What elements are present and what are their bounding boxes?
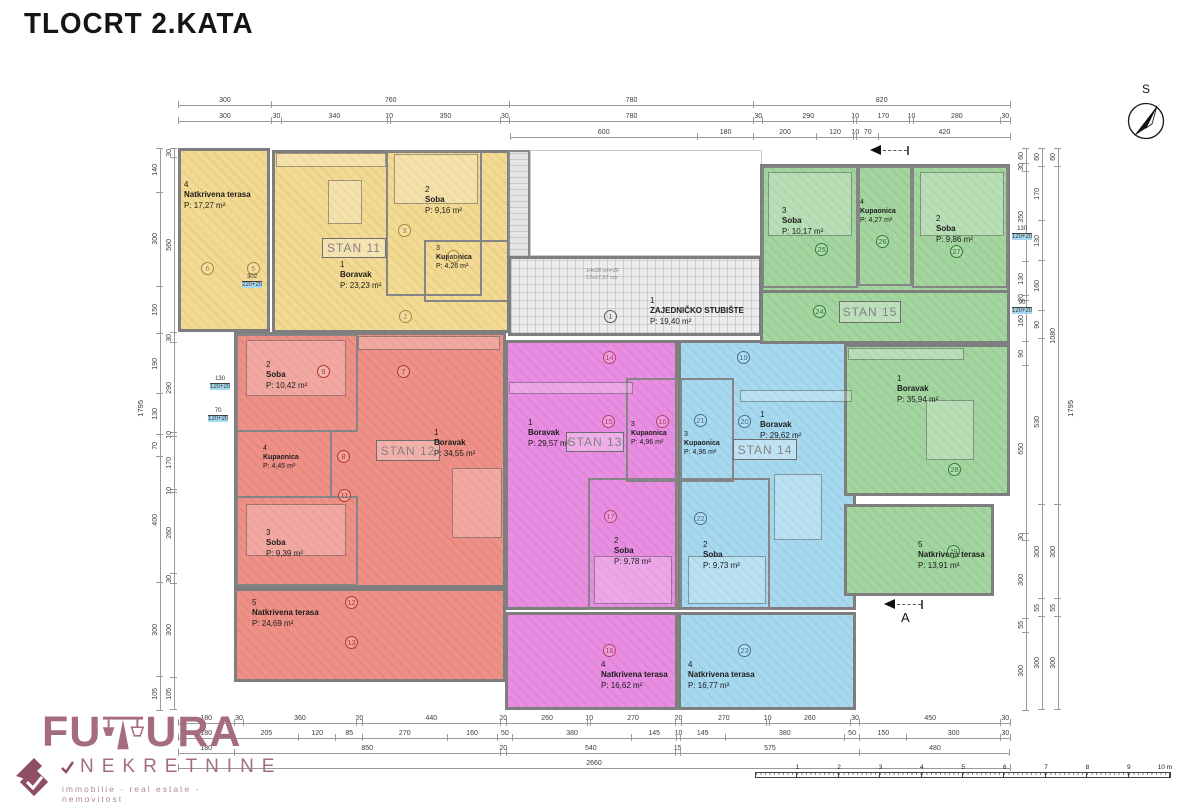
dimension-value: 280 — [951, 113, 963, 120]
position-marker-16: 16 — [656, 415, 669, 428]
dimension-segment: 3 — [839, 773, 880, 777]
position-marker-2: 2 — [399, 310, 412, 323]
dimension-value: 200 — [779, 129, 791, 136]
furniture-kitchen-counter — [509, 382, 633, 394]
dimension-segment: 140 — [150, 148, 161, 192]
dimension-value: 130 — [1018, 273, 1025, 285]
dimension-value: 60 — [1034, 153, 1041, 161]
dimension-segment: 340 — [281, 111, 387, 122]
dimension-segment: 170 — [164, 436, 175, 489]
dimension-segment: 540 — [506, 743, 675, 754]
position-marker-19: 19 — [737, 351, 750, 364]
room-label-stan11-terasa: 4 Natkrivena terasa P: 17,27 m² — [184, 180, 251, 211]
dimension-segment: 260 — [506, 713, 587, 724]
dimension-chain-right-3: 60108030055300 — [1048, 148, 1058, 710]
agency-logo: FU URA NEKRETNINE immobilie - real estat… — [20, 712, 256, 808]
room-label-stan15-soba3: 3 Soba P: 10,17 m² — [782, 206, 823, 237]
dimension-segment: 2 — [797, 773, 838, 777]
dimension-value: 290 — [802, 113, 814, 120]
dimension-value: 780 — [626, 97, 638, 104]
position-marker-7: 7 — [397, 365, 410, 378]
dimension-total-left: 1795 — [136, 400, 145, 417]
dimension-segment: 130 — [1032, 220, 1043, 261]
dimension-value: 70 — [152, 442, 159, 450]
dimension-segment: 300 — [164, 583, 175, 677]
dimension-value: 140 — [152, 164, 159, 176]
dimension-segment: 400 — [150, 457, 161, 583]
dimension-value: 300 — [152, 233, 159, 245]
dimension-value: 530 — [1034, 416, 1041, 428]
logo-name-row: NEKRETNINE — [60, 756, 282, 778]
apartment-label-stan13: STAN 13 — [566, 432, 624, 452]
dimension-segment: 55 — [1016, 618, 1027, 632]
dimension-value: 30 — [754, 113, 762, 120]
dimension-value: 270 — [718, 715, 730, 722]
dimension-value: 850 — [361, 745, 373, 752]
dimension-value: 1 — [796, 765, 800, 772]
dimension-segment: 70 — [857, 127, 879, 138]
position-marker-23: 23 — [738, 644, 751, 657]
dimension-segment: 105 — [164, 677, 175, 710]
position-marker-11: 11 — [338, 489, 351, 502]
dimension-value: 650 — [1018, 443, 1025, 455]
position-marker-12: 12 — [345, 596, 358, 609]
dimension-value: 540 — [585, 745, 597, 752]
dimension-segment: 55 — [1032, 599, 1043, 616]
dimension-value: 30 — [1001, 715, 1009, 722]
dimension-segment: 85 — [336, 728, 363, 739]
position-marker-6: 6 — [201, 262, 214, 275]
dimension-chain-left-inner: 3056030290101701026030300105 — [164, 148, 174, 710]
dimension-value: 340 — [329, 113, 341, 120]
dimension-segment: 380 — [513, 728, 632, 739]
section-line — [883, 150, 907, 151]
room-label-stan14-soba: 2 Soba P: 9,73 m² — [703, 540, 740, 571]
room-label-stan13-terasa: 4 Natkrivena terasa P: 16,62 m² — [601, 660, 668, 691]
room-label-stan14-boravak: 1 Boravak P: 29,62 m² — [760, 410, 801, 441]
dimension-segment: 300 — [907, 728, 1001, 739]
section-line-corner — [907, 146, 909, 155]
dimension-value: 50 — [848, 730, 856, 737]
dimension-segment: 8 — [1046, 773, 1087, 777]
compass-label: S — [1122, 82, 1170, 96]
sill-label: 302 220+20 — [242, 274, 262, 289]
dimension-value: 440 — [426, 715, 438, 722]
dimension-segment: 160 — [1032, 261, 1043, 311]
room-label-stan13-soba: 2 Soba P: 9,78 m² — [614, 536, 651, 567]
dimension-segment: 2660 — [178, 758, 1010, 769]
room-label-stan15-kupaonica: 4 Kupaonica P: 4,27 m² — [860, 198, 896, 225]
dimension-value: 160 — [1034, 280, 1041, 292]
room-label-stan14-kupaonica: 3 Kupaonica P: 4,96 m² — [684, 430, 720, 457]
dimension-chain-bottom-total: 2660 — [178, 759, 1010, 769]
section-label: A — [901, 610, 910, 625]
dimension-value: 85 — [345, 730, 353, 737]
floor-plan-canvas: TLOCRT 2.KATA 4 Natkrivena terasa P: 17 — [0, 0, 1200, 812]
dimension-segment: 300 — [1032, 616, 1043, 710]
dimension-segment: 120 — [816, 127, 854, 138]
dimension-value: 60 — [1018, 152, 1025, 160]
dimension-segment: 9 — [1087, 773, 1128, 777]
dimension-segment: 160 — [447, 728, 497, 739]
room-label-stan12-soba2: 2 Soba P: 10,42 m² — [266, 360, 307, 391]
dimension-segment: 760 — [272, 95, 510, 106]
section-marker-top — [870, 142, 909, 160]
dimension-segment: 60 — [1032, 148, 1043, 167]
dimension-segment: 820 — [754, 95, 1010, 106]
position-marker-8: 8 — [337, 450, 350, 463]
position-marker-1: 1 — [604, 310, 617, 323]
dimension-value: 575 — [764, 745, 776, 752]
dimension-value: 480 — [929, 745, 941, 752]
sill-label: 130 120+20 — [210, 376, 230, 391]
dimension-value: 300 — [1050, 546, 1057, 558]
light-shaft — [508, 150, 530, 258]
section-arrow-icon — [884, 599, 895, 609]
dimension-segment: 300 — [1016, 541, 1027, 619]
sill-label: 70 120+20 — [208, 408, 228, 423]
apartment-label-stan14: STAN 14 — [733, 439, 797, 460]
dimension-value: 260 — [541, 715, 553, 722]
dimension-segment: 600 — [510, 127, 698, 138]
dimension-segment: 120 — [298, 728, 336, 739]
dimension-value: 300 — [948, 730, 960, 737]
dimension-segment: 130 — [1016, 262, 1027, 296]
logo-key-arrow-icon — [14, 756, 54, 798]
position-marker-3: 3 — [398, 224, 411, 237]
dimension-segment: 145 — [680, 728, 725, 739]
dimension-value: 300 — [219, 113, 231, 120]
dimension-segment: 260 — [164, 492, 175, 573]
dimension-value: 55 — [1018, 621, 1025, 629]
dimension-segment: 440 — [363, 713, 501, 724]
dimension-segment: 300 — [1032, 505, 1043, 599]
dimension-value: 600 — [598, 129, 610, 136]
dimension-value: 2660 — [586, 760, 602, 767]
dimension-value: 420 — [939, 129, 951, 136]
dimension-segment: 6 — [963, 773, 1004, 777]
furniture-kitchen-counter — [276, 153, 386, 167]
dimension-segment: 450 — [860, 713, 1001, 724]
dimension-value: 360 — [294, 715, 306, 722]
section-arrow-icon — [870, 145, 881, 155]
dimension-value: 450 — [924, 715, 936, 722]
position-marker-22: 22 — [694, 512, 707, 525]
logo-text-ura: URA — [145, 713, 241, 752]
dimension-segment: 380 — [725, 728, 844, 739]
dimension-value: 130 — [152, 408, 159, 420]
dimension-segment: 170 — [857, 111, 910, 122]
dimension-segment: 300 — [1016, 632, 1027, 710]
room-label-stan11-soba: 2 Soba P: 9,16 m² — [425, 185, 462, 216]
dimension-segment: 300 — [150, 583, 161, 677]
dimension-segment: 290 — [763, 111, 854, 122]
section-line-corner — [921, 600, 923, 609]
dimension-value: 290 — [166, 382, 173, 394]
compass-needle-icon — [1124, 96, 1168, 142]
position-marker-4: 4 — [447, 250, 460, 263]
dimension-value: 50 — [501, 730, 509, 737]
furniture-table — [774, 474, 822, 540]
dimension-value: 190 — [152, 358, 159, 370]
dimension-value: 120 — [311, 730, 323, 737]
dimension-value: 300 — [219, 97, 231, 104]
position-marker-29: 29 — [947, 545, 960, 558]
dimension-value: 9 — [1127, 765, 1131, 772]
scale-bar: 12345678910 m — [755, 772, 1171, 778]
furniture-table — [926, 400, 974, 460]
dimension-segment: 190 — [150, 334, 161, 394]
dimension-value: 820 — [876, 97, 888, 104]
dimension-value: 30 — [166, 149, 173, 157]
room-label-stan12-boravak: 1 Boravak P: 34,55 m² — [434, 428, 475, 459]
dimension-segment: 70 — [150, 435, 161, 457]
room-label-stan14-terasa: 4 Natkrivena terasa P: 16,77 m² — [688, 660, 755, 691]
logo-wordmark: FU URA — [42, 712, 242, 752]
position-marker-28: 28 — [948, 463, 961, 476]
dimension-segment: 360 — [244, 713, 357, 724]
furniture-kitchen-counter — [740, 390, 852, 402]
furniture-kitchen-counter — [358, 336, 500, 350]
dimension-segment: 145 — [632, 728, 677, 739]
dimension-chain-top-1: 300760780820 — [178, 96, 1010, 106]
dimension-value: 170 — [166, 457, 173, 469]
position-marker-14: 14 — [603, 351, 616, 364]
dimension-segment: 300 — [178, 111, 272, 122]
dimension-segment: 850 — [234, 743, 500, 754]
dimension-value: 55 — [1034, 604, 1041, 612]
dimension-segment: 200 — [754, 127, 817, 138]
dimension-value: 6 — [1003, 765, 1007, 772]
position-marker-27: 27 — [950, 245, 963, 258]
dimension-value: 7 — [1044, 765, 1048, 772]
position-marker-18: 18 — [603, 644, 616, 657]
dimension-value: 170 — [1034, 188, 1041, 200]
dimension-chain-bottom-1: 1803036020440202601027020270102603045030 — [178, 714, 1010, 724]
dimension-value: 170 — [877, 113, 889, 120]
dimension-value: 760 — [385, 97, 397, 104]
dimension-value: 60 — [1050, 153, 1057, 161]
dimension-value: 30 — [501, 113, 509, 120]
roof-area — [530, 150, 762, 256]
dimension-value: 270 — [627, 715, 639, 722]
dimension-value: 120 — [829, 129, 841, 136]
dimension-segment: 270 — [591, 713, 675, 724]
position-marker-21: 21 — [694, 414, 707, 427]
dimension-value: 350 — [440, 113, 452, 120]
dimension-value: 260 — [166, 527, 173, 539]
dimension-segment: 300 — [1048, 505, 1059, 599]
dimension-segment: 50 — [844, 728, 860, 739]
dimension-segment: 10 m — [1129, 773, 1170, 777]
sill-label: 90 120+20 — [1012, 300, 1032, 315]
dimension-value: 30 — [166, 334, 173, 342]
logo-balance-icon — [101, 712, 145, 752]
dimension-value: 70 — [864, 129, 872, 136]
logo-tagline: immobilie - real estate - nemovitost — [62, 784, 256, 804]
dimension-segment: 7 — [1004, 773, 1045, 777]
dimension-segment: 1080 — [1048, 167, 1059, 505]
dimension-value: 160 — [1018, 315, 1025, 327]
apartment-label-stan11: STAN 11 — [322, 238, 386, 258]
dimension-segment: 55 — [1048, 599, 1059, 616]
dimension-segment: 300 — [150, 192, 161, 286]
dimension-value: 90 — [1018, 350, 1025, 358]
position-marker-25: 25 — [815, 243, 828, 256]
dimension-segment: 5 — [922, 773, 963, 777]
dimension-value: 300 — [166, 624, 173, 636]
dimension-value: 300 — [1018, 574, 1025, 586]
page-title: TLOCRT 2.KATA — [24, 8, 254, 41]
dimension-segment: 150 — [150, 287, 161, 334]
dimension-segment: 300 — [178, 95, 272, 106]
dimension-value: 55 — [1050, 604, 1057, 612]
dimension-segment: 290 — [164, 342, 175, 433]
dimension-value: 90 — [1034, 321, 1041, 329]
dimension-segment: 420 — [879, 127, 1010, 138]
dimension-value: 205 — [261, 730, 273, 737]
dimension-value: 300 — [1034, 546, 1041, 558]
apartment-label-stan15: STAN 15 — [839, 301, 901, 323]
dimension-value: 560 — [166, 239, 173, 251]
position-marker-9: 9 — [317, 365, 330, 378]
dimension-segment: 30 — [1001, 728, 1010, 739]
dimension-value: 30 — [1001, 113, 1009, 120]
dimension-segment: 170 — [1032, 167, 1043, 220]
dimension-segment: 780 — [510, 95, 754, 106]
stan11-terrace-area — [178, 148, 270, 332]
dimension-value: 10 m — [1158, 765, 1172, 772]
dimension-segment: 280 — [913, 111, 1001, 122]
room-label-staircase: 1 ZAJEDNIČKO STUBIŠTE P: 19,40 m² — [650, 296, 744, 327]
furniture-kitchen-counter — [848, 348, 964, 360]
sill-label: 130 120+20 — [1012, 226, 1032, 241]
position-marker-26: 26 — [876, 235, 889, 248]
dimension-segment: 150 — [860, 728, 907, 739]
position-marker-24: 24 — [813, 305, 826, 318]
dimension-segment: 1 — [756, 773, 797, 777]
dimension-value: 30 — [166, 575, 173, 583]
dimension-segment: 4 — [880, 773, 921, 777]
room-label-stan15-boravak: 1 Boravak P: 35,94 m² — [897, 374, 938, 405]
dimension-value: 380 — [566, 730, 578, 737]
dimension-value: 105 — [152, 688, 159, 700]
dimension-segment: 90 — [1032, 311, 1043, 339]
dimension-segment: 30 — [1001, 713, 1010, 724]
dimension-chain-bottom-3: 1808502054015575480 — [178, 744, 1010, 754]
dimension-value: 300 — [1018, 665, 1025, 677]
dimension-value: 350 — [1018, 211, 1025, 223]
stair-dimension-note: 14x28 cm=2F 17x17,57 cm — [586, 268, 619, 282]
dimension-value: 5 — [961, 765, 965, 772]
dimension-value: 145 — [648, 730, 660, 737]
dimension-value: 8 — [1086, 765, 1090, 772]
dimension-segment: 270 — [682, 713, 766, 724]
logo-check-icon — [60, 760, 75, 775]
dimension-segment: 530 — [1032, 339, 1043, 505]
dimension-segment: 60 — [1048, 148, 1059, 167]
dimension-value: 380 — [779, 730, 791, 737]
dimension-segment: 180 — [698, 127, 754, 138]
dimension-value: 150 — [152, 304, 159, 316]
dimension-value: 1080 — [1050, 328, 1057, 344]
position-marker-13: 13 — [345, 636, 358, 649]
dimension-value: 400 — [152, 514, 159, 526]
dimension-segment: 780 — [510, 111, 754, 122]
room-label-stan11-boravak: 1 Boravak P: 23,23 m² — [340, 260, 381, 291]
dimension-chain-top-3: 6001802001201070420 — [510, 128, 1010, 138]
dimension-value: 180 — [720, 129, 732, 136]
position-marker-15: 15 — [602, 415, 615, 428]
room-label-stan12-terasa: 5 Natkrivena terasa P: 24,69 m² — [252, 598, 319, 629]
dimension-value: 150 — [878, 730, 890, 737]
dimension-chain-bottom-2: 1802051208527016050380145101453805015030… — [178, 729, 1010, 739]
room-label-stan12-kupaonica: 4 Kupaonica P: 4,45 m² — [263, 444, 299, 471]
north-compass: S — [1122, 82, 1170, 147]
dimension-segment: 260 — [769, 713, 850, 724]
dimension-total-right: 1795 — [1066, 400, 1075, 417]
dimension-value: 260 — [804, 715, 816, 722]
dimension-value: 300 — [152, 624, 159, 636]
dimension-chain-right-2: 601701301609053030055300 — [1032, 148, 1042, 710]
dimension-segment: 50 — [497, 728, 513, 739]
apartment-label-stan12: STAN 12 — [376, 440, 440, 461]
dimension-segment: 350 — [391, 111, 500, 122]
dimension-value: 4 — [920, 765, 924, 772]
dimension-value: 160 — [466, 730, 478, 737]
room-label-stan12-soba3: 3 Soba P: 9,39 m² — [266, 528, 303, 559]
room-label-stan15-soba2: 2 Soba P: 9,86 m² — [936, 214, 973, 245]
dimension-segment: 105 — [150, 677, 161, 710]
position-marker-17: 17 — [604, 510, 617, 523]
dimension-segment: 480 — [860, 743, 1010, 754]
dimension-segment: 560 — [164, 157, 175, 332]
dimension-value: 145 — [697, 730, 709, 737]
dimension-value: 30 — [273, 113, 281, 120]
room-label-stan13-boravak: 1 Boravak P: 29,57 m² — [528, 418, 569, 449]
furniture-table — [328, 180, 362, 224]
dimension-value: 3 — [879, 765, 883, 772]
dimension-value: 30 — [851, 715, 859, 722]
dimension-segment: 350 — [1016, 171, 1027, 261]
dimension-segment: 130 — [150, 394, 161, 435]
position-marker-20: 20 — [738, 415, 751, 428]
dimension-value: 30 — [1001, 730, 1009, 737]
dimension-value: 105 — [166, 688, 173, 700]
dimension-segment: 90 — [1016, 342, 1027, 365]
furniture-table — [452, 468, 502, 538]
dimension-segment: 30 — [1001, 111, 1010, 122]
dimension-value: 300 — [1050, 657, 1057, 669]
dimension-segment: 270 — [363, 728, 447, 739]
dimension-value: 270 — [399, 730, 411, 737]
dimension-value: 300 — [1034, 657, 1041, 669]
dimension-chain-left-outer: 14030015019013070400300105 — [150, 148, 160, 710]
dimension-value: 780 — [626, 113, 638, 120]
dimension-value: 130 — [1034, 235, 1041, 247]
section-line — [897, 604, 921, 605]
dimension-chain-top-2: 30030340103503078030290101701028030 — [178, 112, 1010, 122]
logo-text-nekretnine: NEKRETNINE — [80, 756, 282, 778]
dimension-segment: 60 — [1016, 148, 1027, 164]
logo-text-fu: FU — [42, 713, 101, 752]
dimension-value: 2 — [837, 765, 841, 772]
dimension-segment: 575 — [680, 743, 860, 754]
dimension-segment: 650 — [1016, 365, 1027, 533]
dimension-segment: 300 — [1048, 616, 1059, 710]
